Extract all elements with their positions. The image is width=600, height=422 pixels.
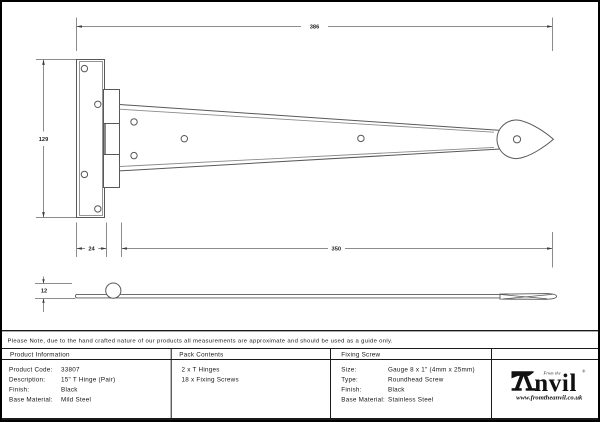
svg-text:24: 24 xyxy=(88,247,95,253)
svg-text:Roundhead Screw: Roundhead Screw xyxy=(388,377,444,384)
svg-text:33807: 33807 xyxy=(61,367,80,374)
svg-text:2 x T Hinges: 2 x T Hinges xyxy=(182,367,220,374)
svg-text:18 x Fixing Screws: 18 x Fixing Screws xyxy=(182,377,239,384)
svg-text:Gauge 8 x 1" (4mm x 25mm): Gauge 8 x 1" (4mm x 25mm) xyxy=(388,367,475,374)
svg-text:Product Information: Product Information xyxy=(10,352,70,359)
svg-text:386: 386 xyxy=(310,24,320,30)
svg-text:Mild Steel: Mild Steel xyxy=(61,396,91,403)
svg-text:®: ® xyxy=(582,368,585,373)
svg-text:www.fromtheanvil.co.uk: www.fromtheanvil.co.uk xyxy=(516,394,583,401)
svg-text:Black: Black xyxy=(388,386,405,393)
svg-text:Type:: Type: xyxy=(341,377,358,384)
svg-text:Size:: Size: xyxy=(341,367,356,374)
svg-text:Pack Contents: Pack Contents xyxy=(179,352,223,359)
svg-text:Fixing Screw: Fixing Screw xyxy=(341,352,380,359)
svg-text:Base Material:: Base Material: xyxy=(9,396,53,403)
svg-text:Description:: Description: xyxy=(9,377,45,384)
svg-text:Finish:: Finish: xyxy=(9,386,29,393)
svg-text:129: 129 xyxy=(39,137,49,143)
svg-text:Stainless Steel: Stainless Steel xyxy=(388,396,433,403)
svg-text:nvil: nvil xyxy=(534,370,577,397)
svg-text:12: 12 xyxy=(41,289,47,295)
svg-text:350: 350 xyxy=(332,247,342,253)
svg-text:Base Material:: Base Material: xyxy=(341,396,385,403)
svg-text:15" T Hinge (Pair): 15" T Hinge (Pair) xyxy=(61,377,115,384)
svg-text:Finish:: Finish: xyxy=(341,386,361,393)
svg-text:Product Code:: Product Code: xyxy=(9,367,53,374)
svg-text:Please Note, due to the hand c: Please Note, due to the hand crafted nat… xyxy=(8,338,393,344)
svg-text:Black: Black xyxy=(61,386,78,393)
